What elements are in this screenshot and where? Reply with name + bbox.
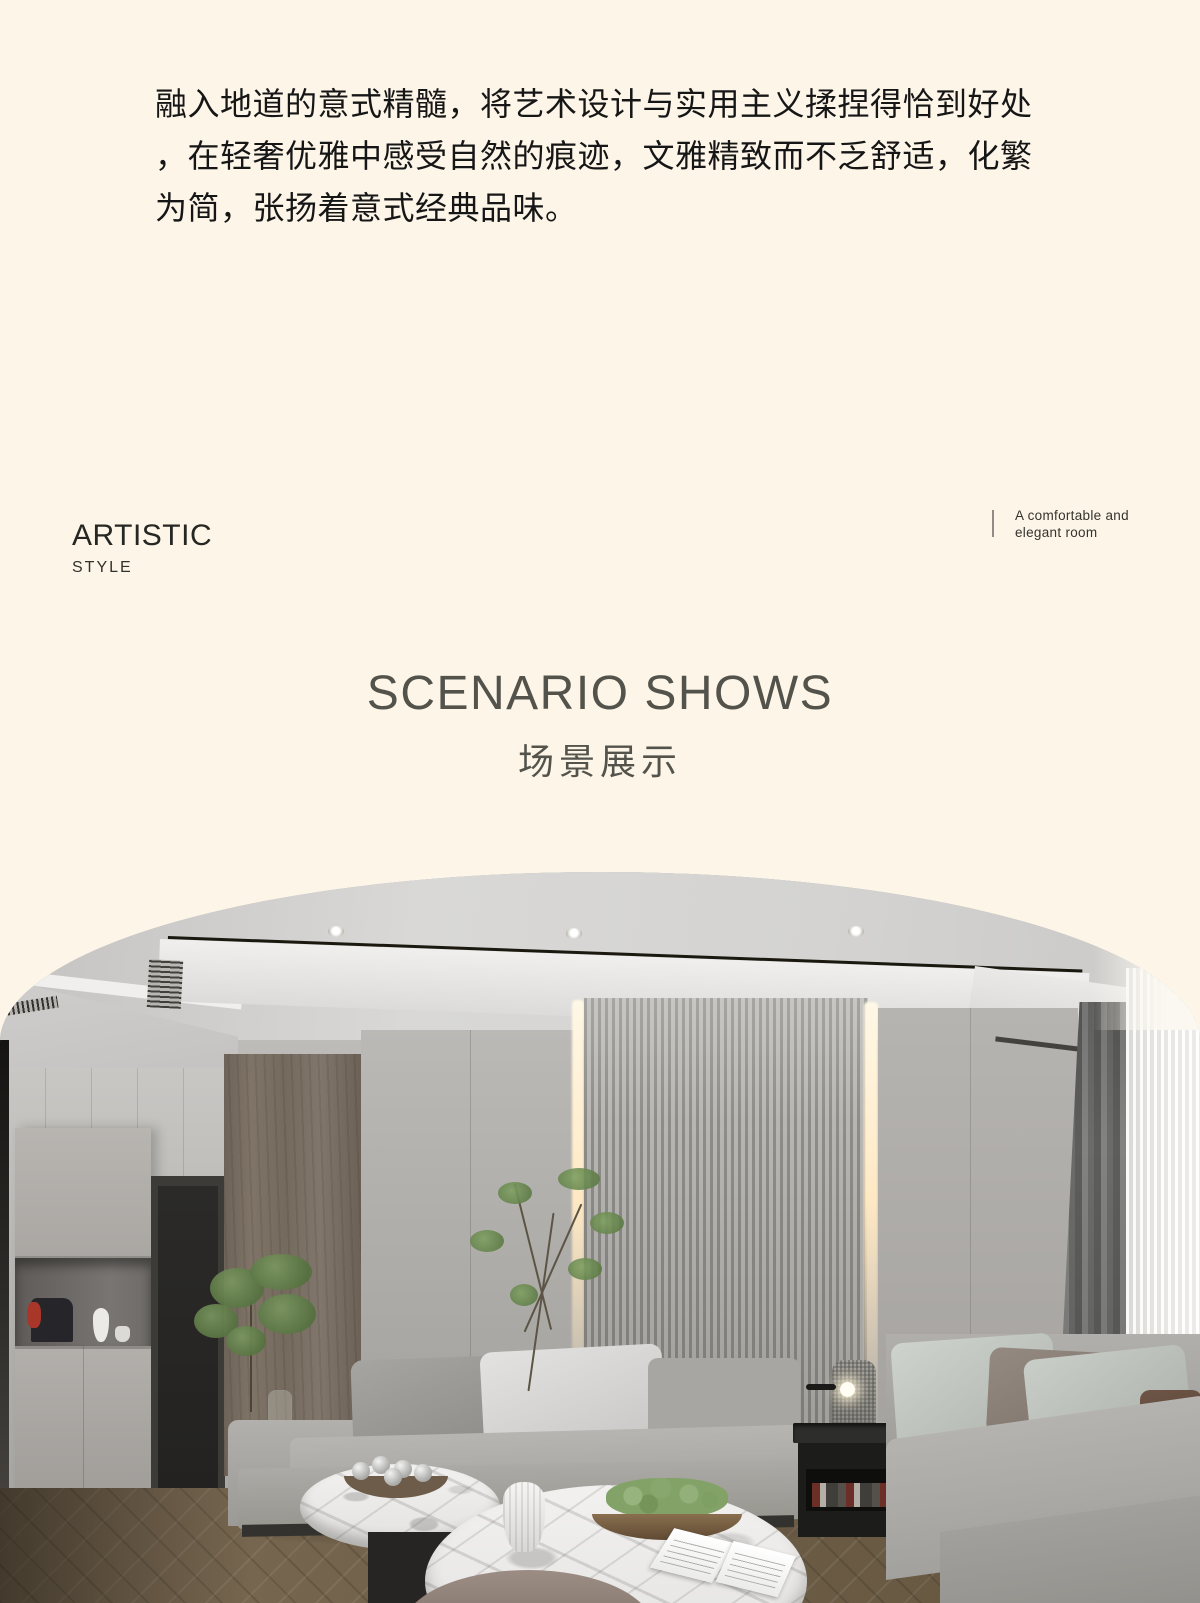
window-light xyxy=(1092,938,1200,1030)
artistic-style-block: ARTISTIC STYLE xyxy=(72,521,212,576)
decor-red-ornament xyxy=(27,1302,41,1328)
intro-paragraph: 融入地道的意式精髓，将艺术设计与实用主义揉捏得恰到好处 ，在轻奢优雅中感受自然的… xyxy=(155,78,1055,234)
potted-plant xyxy=(192,1260,342,1420)
intro-line: 为简，张扬着意式经典品味。 xyxy=(155,182,1055,234)
artistic-subtitle: STYLE xyxy=(72,560,212,576)
branch-leaves xyxy=(510,1284,538,1306)
plant-foliage xyxy=(250,1254,312,1290)
silver-ball xyxy=(352,1462,370,1480)
plant-foliage xyxy=(258,1294,316,1334)
plant-foliage xyxy=(226,1326,266,1356)
section-heading-zh: 场景展示 xyxy=(0,744,1200,780)
silver-ball xyxy=(384,1468,402,1486)
floor-shadow xyxy=(0,1488,250,1603)
branch-leaves xyxy=(590,1212,624,1234)
page: { "intro": { "lines": [ "融入地道的意式精髓，将艺术设计… xyxy=(0,0,1200,1603)
scenario-photo xyxy=(0,872,1200,1603)
vase-branches xyxy=(440,1172,660,1372)
decor-small-vase xyxy=(115,1326,130,1342)
spotlight-icon xyxy=(566,928,582,939)
cabinet-niche xyxy=(15,1258,151,1346)
intro-line: ，在轻奢优雅中感受自然的痕迹，文雅精致而不乏舒适，化繁 xyxy=(155,130,1055,182)
branch-leaves xyxy=(558,1168,600,1190)
green-decor xyxy=(606,1478,728,1518)
bowl-of-silver-balls xyxy=(344,1458,448,1498)
artistic-title: ARTISTIC xyxy=(72,521,212,551)
section-heading-en: SCENARIO SHOWS xyxy=(0,670,1200,718)
magazine-text xyxy=(660,1537,726,1575)
decor-white-vase xyxy=(93,1308,109,1342)
display-cabinet xyxy=(15,1128,151,1506)
caption-divider-bar xyxy=(992,510,994,537)
cabinet-upper-doors xyxy=(15,1128,151,1258)
plant-stem xyxy=(250,1300,252,1412)
fluted-white-vase xyxy=(503,1482,545,1552)
magazine-text xyxy=(725,1550,787,1589)
table-lamp xyxy=(832,1360,876,1428)
cabinet-door-seam xyxy=(83,1346,84,1506)
caption-line: elegant room xyxy=(1015,525,1129,542)
silver-ball xyxy=(414,1464,432,1482)
branch-leaves xyxy=(568,1258,602,1280)
intro-line: 融入地道的意式精髓，将艺术设计与实用主义揉捏得恰到好处 xyxy=(155,78,1055,130)
lamp-bulb xyxy=(840,1382,855,1397)
branch-leaves xyxy=(498,1182,532,1204)
left-shadow-gap xyxy=(0,1040,9,1514)
branch-leaves xyxy=(470,1230,504,1252)
lamp-arm xyxy=(806,1384,836,1390)
side-caption: A comfortable and elegant room xyxy=(992,508,1129,541)
spotlight-icon xyxy=(848,926,864,937)
air-vent xyxy=(147,959,183,1009)
caption-line: A comfortable and xyxy=(1015,508,1129,525)
spotlight-icon xyxy=(328,926,344,937)
